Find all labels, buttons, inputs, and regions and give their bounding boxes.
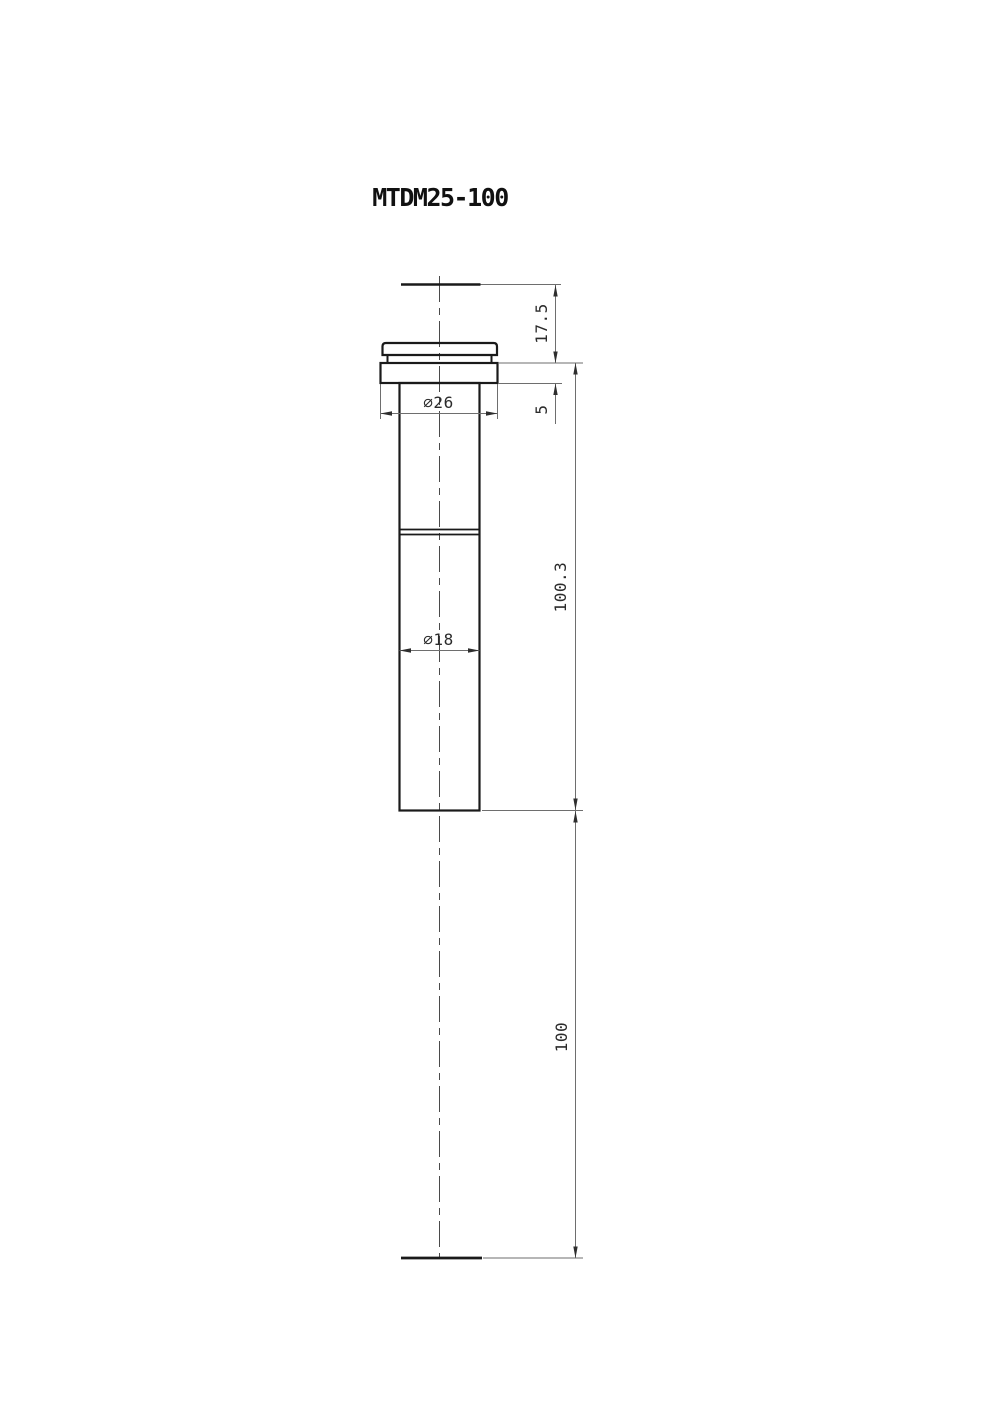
dim-17-5-label: 17.5: [532, 303, 551, 344]
body-seam-lines: [400, 530, 480, 535]
dia26-label: ⌀26: [423, 393, 453, 412]
technical-drawing: ⌀26 ⌀18 17.5 5 100.3 100: [0, 0, 992, 1403]
arrow-17-5-down: [553, 352, 557, 364]
arrow-5-up: [553, 384, 557, 396]
arrow-dia26-left: [381, 411, 393, 415]
dia18-label: ⌀18: [423, 630, 453, 649]
extension-lines: [381, 285, 584, 1259]
arrow-dia18-left: [400, 648, 412, 652]
dim-5-label: 5: [532, 404, 551, 414]
dim-100-3-label: 100.3: [551, 562, 570, 613]
arrow-dia18-right: [468, 648, 480, 652]
arrow-17-5-up: [553, 285, 557, 297]
dim-100-label: 100: [552, 1022, 571, 1052]
arrow-100-3-up: [573, 363, 577, 375]
dimension-lines: [381, 285, 576, 1258]
arrow-100-down: [573, 1247, 577, 1259]
arrow-dia26-right: [486, 411, 498, 415]
arrow-100-up: [573, 811, 577, 823]
arrow-100-3-down: [573, 799, 577, 811]
drawing-canvas: MTDM25-100: [0, 0, 992, 1403]
